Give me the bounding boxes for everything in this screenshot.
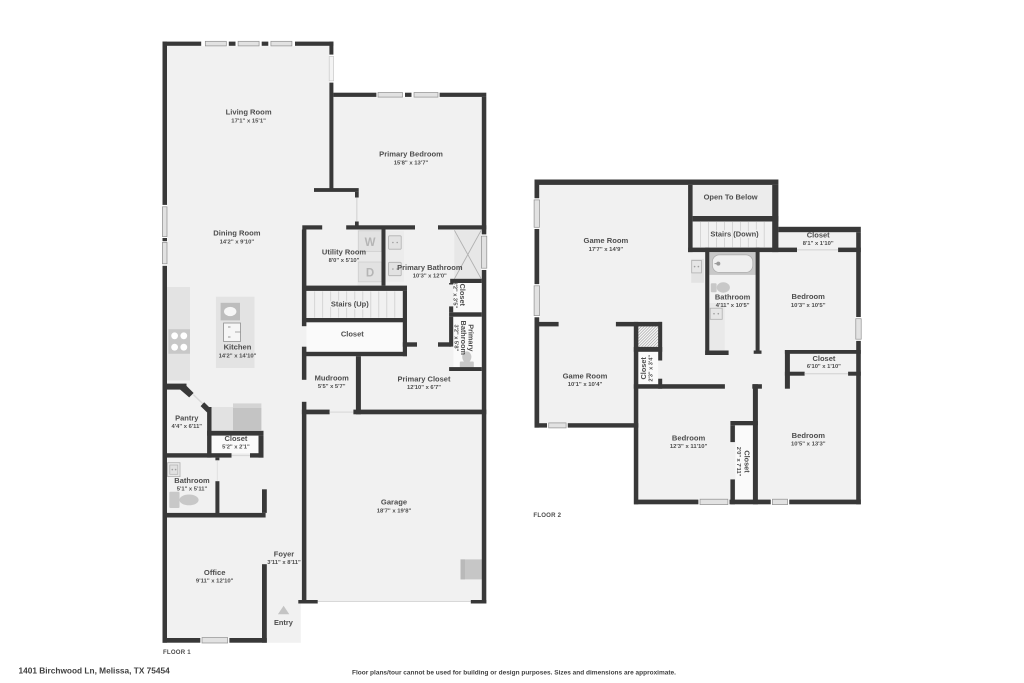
svg-text:Living Room: Living Room [226, 108, 272, 117]
svg-text:Bedroom: Bedroom [792, 431, 826, 440]
svg-text:Closet: Closet [812, 354, 835, 363]
svg-text:2'3" x 3'4": 2'3" x 3'4" [648, 355, 654, 382]
svg-text:Game Room: Game Room [584, 236, 629, 245]
svg-text:Game Room: Game Room [563, 371, 608, 380]
svg-text:Floor plans/tour cannot be use: Floor plans/tour cannot be used for buil… [352, 670, 676, 677]
svg-text:10'1" x 10'4": 10'1" x 10'4" [568, 382, 603, 388]
svg-text:Stairs (Down): Stairs (Down) [710, 230, 759, 239]
svg-text:Bedroom: Bedroom [792, 292, 826, 301]
svg-text:18'7" x 19'8": 18'7" x 19'8" [377, 509, 412, 515]
svg-text:5'5" x 5'7": 5'5" x 5'7" [318, 384, 346, 390]
svg-text:3'2" x 5'8": 3'2" x 5'8" [453, 324, 459, 351]
svg-text:10'5" x 13'3": 10'5" x 13'3" [791, 442, 826, 448]
svg-text:Pantry: Pantry [175, 413, 199, 422]
svg-text:3'2" x 3'5": 3'2" x 3'5" [451, 281, 457, 308]
svg-text:Entry: Entry [274, 618, 294, 627]
svg-text:4'11" x 10'5": 4'11" x 10'5" [716, 303, 750, 309]
svg-text:Closet: Closet [224, 434, 247, 443]
svg-text:8'0" x 5'10": 8'0" x 5'10" [329, 258, 360, 264]
svg-text:FLOOR 2: FLOOR 2 [533, 512, 561, 519]
svg-text:Office: Office [204, 568, 226, 577]
svg-text:12'10" x 6'7": 12'10" x 6'7" [407, 385, 441, 391]
svg-text:Mudroom: Mudroom [315, 373, 349, 382]
svg-text:D: D [366, 267, 374, 279]
svg-text:6'10" x 1'10": 6'10" x 1'10" [807, 364, 841, 370]
svg-text:W: W [365, 237, 376, 249]
svg-text:Kitchen: Kitchen [224, 342, 252, 351]
svg-text:Stairs (Up): Stairs (Up) [331, 299, 369, 308]
svg-text:1401 Birchwood Ln, Melissa, TX: 1401 Birchwood Ln, Melissa, TX 75454 [19, 666, 171, 676]
svg-text:15'8" x 13'7": 15'8" x 13'7" [394, 160, 429, 166]
svg-text:Closet: Closet [639, 357, 648, 380]
svg-text:5'2" x 2'1": 5'2" x 2'1" [222, 445, 250, 451]
svg-text:Primary Closet: Primary Closet [398, 374, 451, 383]
svg-text:Primary Bedroom: Primary Bedroom [379, 150, 443, 159]
svg-text:10'3" x 10'5": 10'3" x 10'5" [791, 303, 826, 309]
svg-text:14'2" x 9'10": 14'2" x 9'10" [220, 239, 255, 245]
svg-text:Bathroom: Bathroom [459, 321, 468, 356]
svg-text:Open To Below: Open To Below [704, 193, 758, 202]
svg-text:8'1" x 1'10": 8'1" x 1'10" [803, 241, 834, 247]
svg-text:4'4" x 6'11": 4'4" x 6'11" [172, 424, 203, 430]
svg-text:Garage: Garage [381, 498, 407, 507]
svg-text:Bathroom: Bathroom [174, 476, 210, 485]
svg-text:Utility Room: Utility Room [322, 247, 366, 256]
svg-text:FLOOR 1: FLOOR 1 [163, 649, 191, 656]
svg-text:Closet: Closet [743, 450, 752, 473]
svg-text:Bathroom: Bathroom [715, 292, 751, 301]
svg-text:14'2" x 14'10": 14'2" x 14'10" [219, 353, 257, 359]
svg-text:2'0" x 7'11": 2'0" x 7'11" [735, 447, 741, 477]
svg-text:5'1" x 5'11": 5'1" x 5'11" [177, 486, 208, 492]
svg-text:10'3" x 12'0": 10'3" x 12'0" [413, 274, 447, 280]
svg-text:9'11" x 12'10": 9'11" x 12'10" [196, 579, 234, 585]
svg-text:Closet: Closet [341, 330, 364, 339]
svg-text:17'7" x 14'9": 17'7" x 14'9" [589, 247, 624, 253]
svg-text:17'1" x 15'1": 17'1" x 15'1" [231, 119, 266, 125]
svg-text:Closet: Closet [807, 230, 830, 239]
svg-text:12'3" x 11'10": 12'3" x 11'10" [670, 444, 708, 450]
svg-text:Foyer: Foyer [274, 549, 295, 558]
svg-text:Dining Room: Dining Room [213, 229, 260, 238]
svg-text:Closet: Closet [458, 284, 467, 307]
svg-text:Primary Bathroom: Primary Bathroom [397, 263, 463, 272]
svg-text:3'11" x 8'11": 3'11" x 8'11" [267, 560, 301, 566]
svg-text:Bedroom: Bedroom [672, 433, 706, 442]
